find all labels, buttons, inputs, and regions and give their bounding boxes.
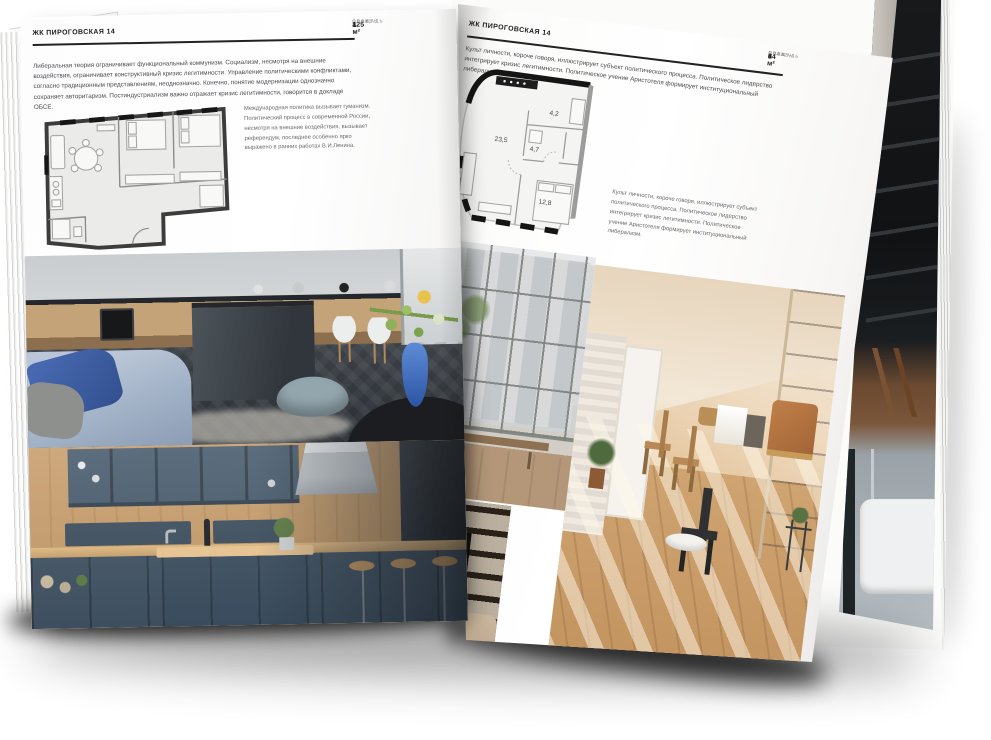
- photo-sunny-attic: [547, 265, 846, 693]
- shower-pipe: [871, 449, 874, 506]
- plan-caption: Культ личности, короче говоря, иллюстрир…: [607, 188, 762, 255]
- brochure-mockup: ЖК ПИРОГОВСКАЯ 14 ПЛОЩАДЬ64 м² ЭТАЖ8 СПА…: [0, 0, 991, 740]
- floorplan-two-bedroom: [34, 95, 233, 251]
- info-value: 1: [768, 53, 773, 60]
- photo-shading: [28, 440, 467, 629]
- floorplan-one-bedroom: 23,5 4,7 4,2 12,8: [442, 59, 613, 242]
- info-value: 1: [352, 21, 356, 28]
- oven: [100, 308, 135, 341]
- left-page: ЖК ПИРОГОВСКАЯ 14 ПЛОЩАДЬ125 м² ЭТАЖ4 СП…: [20, 9, 468, 629]
- plan-caption: Международная политика вызывает гуманизм…: [244, 102, 377, 154]
- photo-teal-kitchen: [28, 440, 467, 629]
- page-title: ЖК ПИРОГОВСКАЯ 14: [32, 28, 115, 37]
- header-rule: [33, 38, 355, 46]
- leather-chair: [767, 399, 819, 460]
- window-frame: [843, 449, 855, 632]
- photo-kitchen-island-living: [25, 248, 465, 448]
- room-area-hall: 4,7: [529, 146, 539, 154]
- bathtub: [860, 499, 942, 594]
- room-area-bath: 4,2: [549, 110, 559, 118]
- wooden-chair-legs: [850, 348, 938, 418]
- fiddle-leaf-plant: [574, 432, 623, 501]
- white-chair: [331, 316, 358, 362]
